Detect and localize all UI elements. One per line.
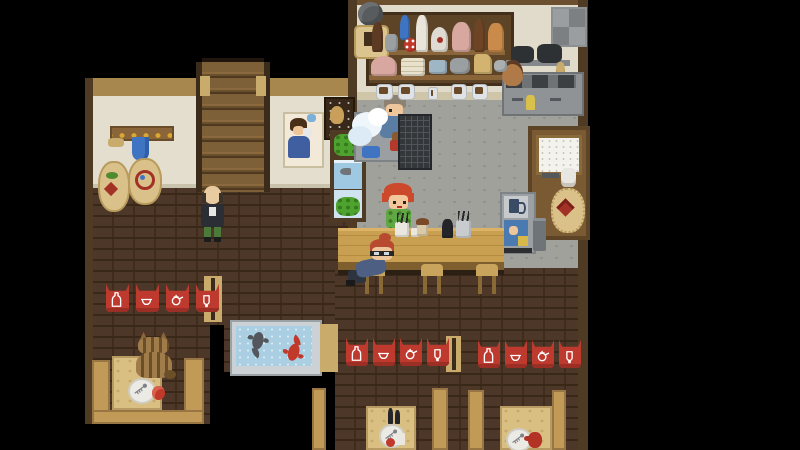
sink-splash-2 — [348, 126, 372, 146]
left-booth-bench-bottom[interactable] — [92, 410, 204, 424]
grey-koi — [243, 327, 271, 363]
middle-table-cup — [397, 433, 405, 445]
blue-flask — [400, 15, 410, 40]
red-snack — [152, 386, 165, 400]
grey-bowl — [494, 60, 507, 72]
pickle-jar-2-contents — [401, 87, 410, 94]
seated-patron-lens-right — [384, 252, 389, 255]
black-bottle — [442, 219, 453, 238]
right-table-teapot-spout — [524, 436, 530, 441]
fishbone-icon — [131, 381, 149, 398]
wok-pan-2 — [537, 44, 562, 63]
sake-cup-icon — [430, 344, 445, 363]
kitchen-frame-top — [348, 0, 588, 5]
seated-patron-character[interactable] — [346, 232, 398, 290]
cat-tail — [164, 370, 176, 379]
bald-patron-shoe-right — [214, 237, 221, 242]
seated-patron-shoe — [346, 280, 355, 286]
pickle-jar-4-contents — [454, 87, 462, 94]
koi-pond[interactable] — [230, 320, 322, 376]
blue-bowls — [429, 60, 447, 74]
right-table-teapot — [528, 432, 542, 448]
hanging-towel — [132, 137, 149, 160]
wall-fan-vent — [551, 7, 587, 47]
bald-patron-shirt — [209, 207, 216, 216]
bald-patron-pants-right — [214, 227, 221, 237]
pickle-jar-3-contents — [431, 90, 433, 96]
fish-tank-fish — [340, 168, 351, 175]
stairs-newel-left — [200, 76, 210, 96]
door-note-tag — [561, 168, 576, 187]
dishwasher-eye — [389, 109, 392, 112]
utensil-pot — [395, 222, 409, 237]
fridge-poster-face — [509, 226, 518, 235]
owl-poster-owl — [330, 106, 344, 124]
sake-bottle-icon — [349, 344, 364, 363]
white-bottle — [416, 15, 428, 52]
fridge-poster-corner — [518, 236, 528, 246]
paper-bag — [474, 54, 492, 74]
right-booth-bench-left[interactable] — [468, 390, 484, 450]
bartender-hair-tuft-right — [408, 193, 414, 202]
sake-bottle-icon — [481, 346, 496, 365]
plate-stack — [401, 58, 425, 76]
koi-pond-water — [236, 326, 312, 366]
middle-booth-bench-left[interactable] — [312, 388, 326, 450]
bowl-icon — [139, 290, 154, 309]
pickle-jar-1-contents — [379, 87, 388, 94]
fridge-mug-icon — [509, 199, 519, 213]
straw-wreath-2-ring — [135, 170, 155, 190]
beer-poster-shirt — [288, 136, 310, 158]
trash-can — [533, 218, 546, 251]
seated-patron-lens-left — [374, 252, 379, 255]
chopstick-pot — [456, 220, 471, 238]
straw-wreath-1-leaf — [106, 172, 118, 179]
bowl-icon — [376, 344, 391, 363]
round-flask-label — [437, 37, 443, 43]
chopstick-pot-utensils — [458, 211, 469, 221]
bald-patron-shoe-left — [204, 237, 211, 242]
right-booth-bench-right[interactable] — [552, 390, 566, 450]
teapot-icon — [169, 290, 184, 309]
grey-pot — [450, 58, 470, 74]
middle-table-bottle-1 — [388, 408, 393, 424]
partition-post-2-slot — [452, 338, 456, 370]
coat-hook-end — [108, 138, 124, 147]
bartender-hair-tuft-left — [382, 193, 388, 202]
bartender-eye-right — [403, 201, 406, 204]
bar-stool-2[interactable] — [421, 264, 443, 296]
red-koi — [280, 329, 311, 366]
oil-bottle — [526, 95, 535, 110]
game-viewport[interactable] — [0, 0, 800, 450]
sake-cup-icon — [562, 346, 577, 365]
cat-character[interactable] — [136, 332, 174, 380]
brown-bottle — [474, 19, 485, 52]
bald-patron-hair-left — [202, 193, 206, 203]
bar-stool-3[interactable] — [476, 264, 498, 296]
sink-splash-3 — [368, 108, 388, 126]
bald-patron-character[interactable] — [198, 184, 227, 244]
utensil-pot-utensils — [397, 213, 408, 223]
menu-whiteboard — [536, 135, 582, 175]
pink-jar — [452, 22, 471, 52]
stove-handle-1 — [512, 98, 523, 101]
pickle-jar-3 — [428, 87, 438, 100]
grey-jar — [385, 34, 398, 52]
fridge-base — [500, 248, 532, 253]
stairs-newel-right — [256, 76, 266, 96]
plant-tank-plant — [336, 197, 360, 216]
teapot-icon — [535, 346, 550, 365]
fridge-mug-handle — [519, 202, 526, 214]
bald-patron-pants-left — [204, 227, 211, 237]
straw-wreath-2-dot — [140, 175, 145, 180]
shaker-cap — [416, 218, 429, 225]
pond-walkway — [320, 324, 338, 372]
bartender-eye-left — [393, 201, 396, 204]
beer-poster-bubble — [307, 114, 316, 122]
pickle-jar-5-contents — [475, 87, 483, 94]
bartender-mouth — [397, 206, 402, 208]
drying-rack — [398, 114, 432, 170]
orange-jar — [488, 23, 504, 52]
dark-sake-bottle — [372, 22, 383, 52]
teapot-icon — [403, 344, 418, 363]
door-handle — [542, 173, 559, 178]
sake-bottle-icon — [109, 290, 124, 309]
bald-patron-hair-right — [219, 193, 223, 203]
middle-booth-bench-right[interactable] — [432, 388, 448, 450]
sink-towel — [362, 146, 380, 158]
pink-lidded-pot — [371, 56, 397, 76]
stove-handle-2 — [550, 98, 561, 101]
middle-table-red-snack — [386, 438, 395, 447]
middle-table-bottle-2 — [395, 410, 400, 424]
bowl-icon — [508, 346, 523, 365]
sake-cup-icon — [199, 290, 214, 309]
